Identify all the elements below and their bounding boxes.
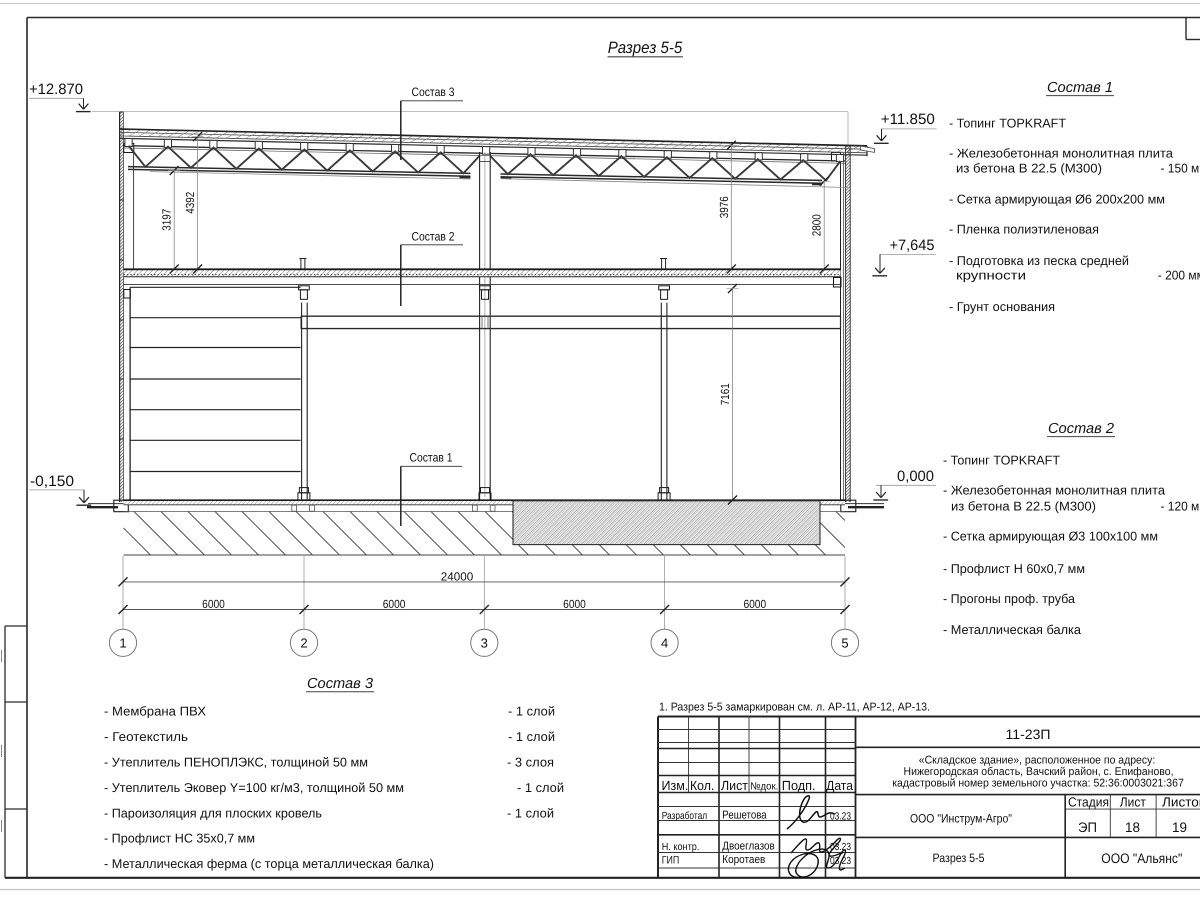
svg-text:- Пароизоляция для плоских кро: - Пароизоляция для плоских кровель xyxy=(104,806,322,821)
svg-text:- Геотекстиль: - Геотекстиль xyxy=(104,729,188,744)
svg-text:18: 18 xyxy=(1125,820,1140,835)
svg-text:6000: 6000 xyxy=(743,597,766,611)
svg-text:Состав 3: Состав 3 xyxy=(307,676,373,692)
svg-text:из бетона В 22.5 (М300): из бетона В 22.5 (М300) xyxy=(951,499,1096,514)
svg-text:«Складское здание», расположен: «Складское здание», расположенное по адр… xyxy=(919,754,1156,766)
svg-text:ООО "Инструм-Агро": ООО "Инструм-Агро" xyxy=(910,812,1012,826)
svg-text:Разрез 5-5: Разрез 5-5 xyxy=(933,851,985,865)
svg-text:24000: 24000 xyxy=(441,569,474,583)
svg-text:Разработал: Разработал xyxy=(662,811,707,822)
svg-text:- Металлическая балка: - Металлическая балка xyxy=(943,622,1082,637)
svg-text:- 200 мм: - 200 мм xyxy=(1158,268,1200,283)
svg-text:4: 4 xyxy=(661,636,668,651)
svg-text:3976: 3976 xyxy=(717,196,731,218)
svg-text:Изм.: Изм. xyxy=(662,778,689,793)
svg-text:0,000: 0,000 xyxy=(897,468,934,485)
svg-text:Состав 3: Состав 3 xyxy=(412,85,455,99)
svg-text:- Железобетонная монолитная п: - Железобетонная монолитная плита xyxy=(943,483,1166,498)
svg-text:- 1 слой: - 1 слой xyxy=(507,806,554,821)
svg-text:1: 1 xyxy=(119,636,126,651)
svg-text:- Металлическая ферма (с торца: - Металлическая ферма (с торца металличе… xyxy=(104,856,434,871)
svg-text:- Утеплитель Эковер Y=100 кг/м: - Утеплитель Эковер Y=100 кг/м3, толщино… xyxy=(104,780,404,795)
svg-text:- Сетка армирующая Ø6 200x200: - Сетка армирующая Ø6 200x200 мм xyxy=(949,192,1165,207)
svg-text:19: 19 xyxy=(1172,820,1187,835)
svg-text:крупности: крупности xyxy=(956,268,1026,283)
svg-text:- Пленка полиэтиленовая: - Пленка полиэтиленовая xyxy=(949,222,1099,237)
svg-text:Состав 1: Состав 1 xyxy=(410,451,453,465)
svg-text:Состав 1: Состав 1 xyxy=(1047,80,1113,96)
svg-text:- 3 слоя: - 3 слоя xyxy=(507,755,554,770)
svg-text:Лист: Лист xyxy=(721,778,748,793)
svg-text:Коротаев: Коротаев xyxy=(722,854,765,866)
svg-text:+11.850: +11.850 xyxy=(881,111,935,128)
svg-text:6000: 6000 xyxy=(383,597,406,611)
svg-text:ГИП: ГИП xyxy=(662,854,680,866)
svg-text:№док.: №док. xyxy=(750,781,778,793)
svg-text:Подп.: Подп. xyxy=(782,778,816,793)
svg-text:- 1 слой: - 1 слой xyxy=(508,704,555,719)
svg-text:- Профлист Н 60х0,7 мм: - Профлист Н 60х0,7 мм xyxy=(943,561,1085,576)
svg-text:6000: 6000 xyxy=(563,597,586,611)
svg-text:- Утеплитель ПЕНОПЛЭКС, толщин: - Утеплитель ПЕНОПЛЭКС, толщиной 50 мм xyxy=(104,755,368,770)
svg-text:3: 3 xyxy=(481,636,488,651)
svg-text:- 1 слой: - 1 слой xyxy=(517,780,564,795)
svg-text:Двоеглазов: Двоеглазов xyxy=(722,840,775,852)
svg-text:4392: 4392 xyxy=(183,192,197,214)
svg-text:Лист: Лист xyxy=(1120,794,1146,809)
svg-text:3197: 3197 xyxy=(160,209,174,231)
svg-text:1. Разрез 5-5 замаркирован см.: 1. Разрез 5-5 замаркирован см. л. АР-11,… xyxy=(659,702,930,714)
svg-text:Листов: Листов xyxy=(1162,794,1200,809)
svg-text:Состав 2: Состав 2 xyxy=(1048,421,1114,437)
svg-text:- 150 мм: - 150 мм xyxy=(1161,161,1200,176)
svg-text:Стадия: Стадия xyxy=(1068,794,1109,809)
svg-text:-0,150: -0,150 xyxy=(30,473,74,490)
svg-text:6000: 6000 xyxy=(202,597,225,611)
svg-text:Дата: Дата xyxy=(826,778,854,793)
svg-text:5: 5 xyxy=(841,636,848,651)
svg-text:+12.870: +12.870 xyxy=(29,81,83,98)
svg-text:- 120 мм: - 120 мм xyxy=(1161,499,1200,514)
svg-text:Нижегородская область, Вачский: Нижегородская область, Вачский район, с.… xyxy=(904,766,1174,778)
svg-text:ЭП: ЭП xyxy=(1078,820,1097,835)
svg-text:ООО "Альянс": ООО "Альянс" xyxy=(1101,851,1182,866)
svg-text:кадастровый номер земельного у: кадастровый номер земельного участка: 52… xyxy=(892,777,1184,789)
svg-text:- Грунт основания: - Грунт основания xyxy=(949,299,1055,314)
svg-text:- 1 слой: - 1 слой xyxy=(508,729,555,744)
svg-text:7161: 7161 xyxy=(718,383,732,405)
svg-text:- Железобетонная монолитная п: - Железобетонная монолитная плита xyxy=(949,146,1174,161)
svg-text:- Топинг TOPKRAFT: - Топинг TOPKRAFT xyxy=(943,453,1060,468)
svg-text:- Профлист НС 35х0,7 мм: - Профлист НС 35х0,7 мм xyxy=(104,831,255,846)
svg-text:Разрез 5-5: Разрез 5-5 xyxy=(608,39,683,57)
svg-text:Решетова: Решетова xyxy=(722,810,767,822)
svg-text:- Подготовка из песка средней: - Подготовка из песка средней xyxy=(949,253,1129,268)
svg-text:- Мембрана ПВХ: - Мембрана ПВХ xyxy=(104,704,206,719)
svg-text:- Прогоны проф. труба: - Прогоны проф. труба xyxy=(943,591,1076,606)
svg-text:+7,645: +7,645 xyxy=(890,237,935,254)
svg-text:2800: 2800 xyxy=(810,214,824,236)
svg-text:11-23П: 11-23П xyxy=(1006,727,1051,742)
svg-text:2: 2 xyxy=(300,636,307,651)
svg-text:- Топинг TOPKRAFT: - Топинг TOPKRAFT xyxy=(949,116,1066,131)
svg-text:Состав 2: Состав 2 xyxy=(412,230,455,244)
svg-text:Н. контр.: Н. контр. xyxy=(662,842,700,853)
svg-text:- Сетка армирующая Ø3 100x100: - Сетка армирующая Ø3 100x100 мм xyxy=(943,529,1158,544)
svg-text:из бетона В 22.5 (М300): из бетона В 22.5 (М300) xyxy=(956,161,1102,176)
svg-text:Кол.: Кол. xyxy=(690,778,714,793)
